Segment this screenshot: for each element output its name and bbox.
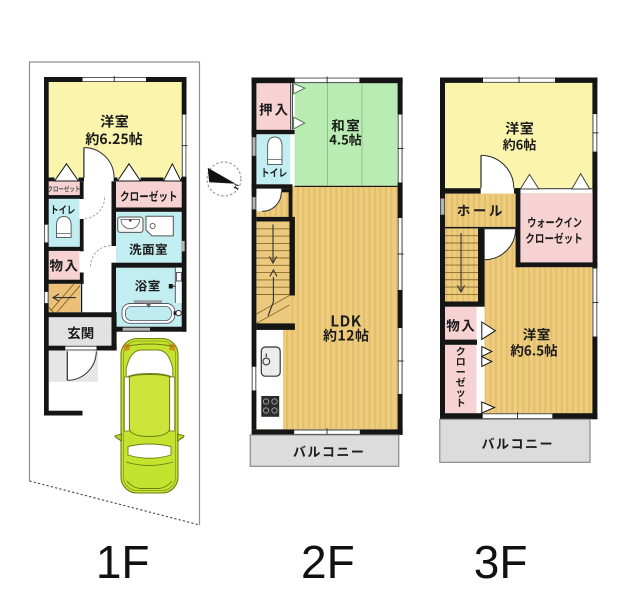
- svg-text:1F: 1F: [96, 536, 150, 588]
- svg-text:2F: 2F: [301, 536, 355, 588]
- svg-text:3F: 3F: [474, 536, 528, 588]
